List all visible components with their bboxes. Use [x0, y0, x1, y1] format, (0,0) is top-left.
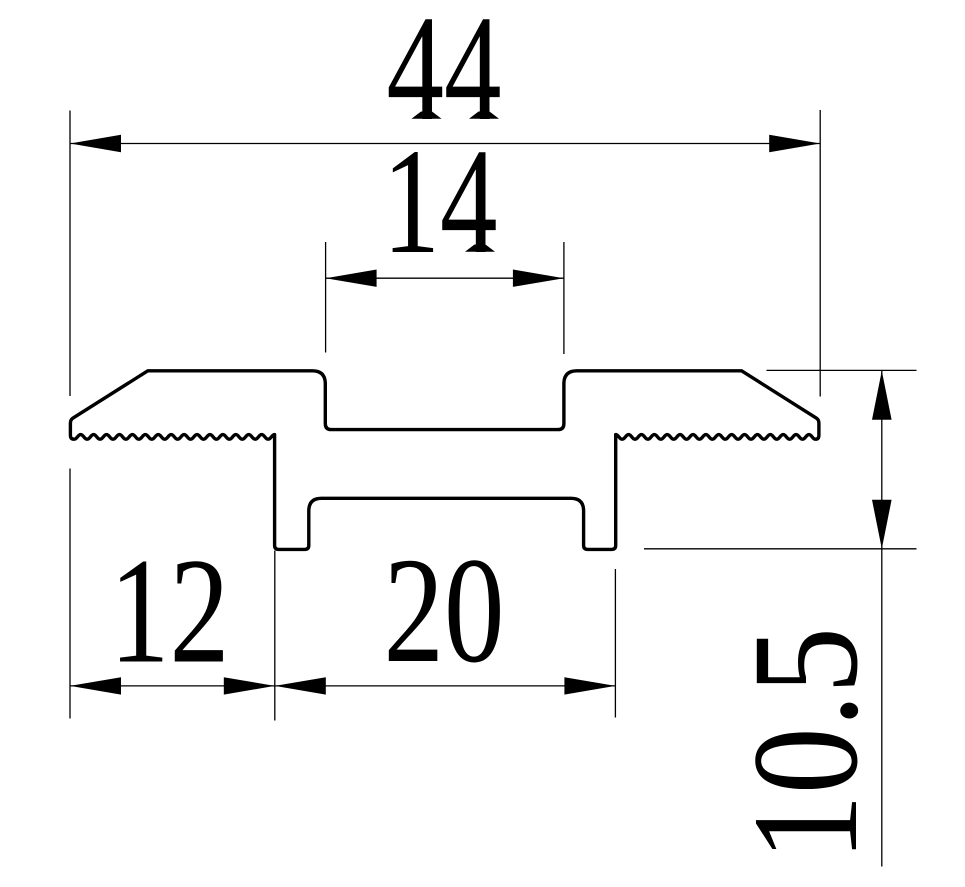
svg-text:20: 20: [384, 526, 505, 694]
svg-text:14: 14: [383, 117, 498, 285]
svg-text:10.5: 10.5: [721, 627, 889, 861]
svg-text:12: 12: [110, 527, 230, 695]
